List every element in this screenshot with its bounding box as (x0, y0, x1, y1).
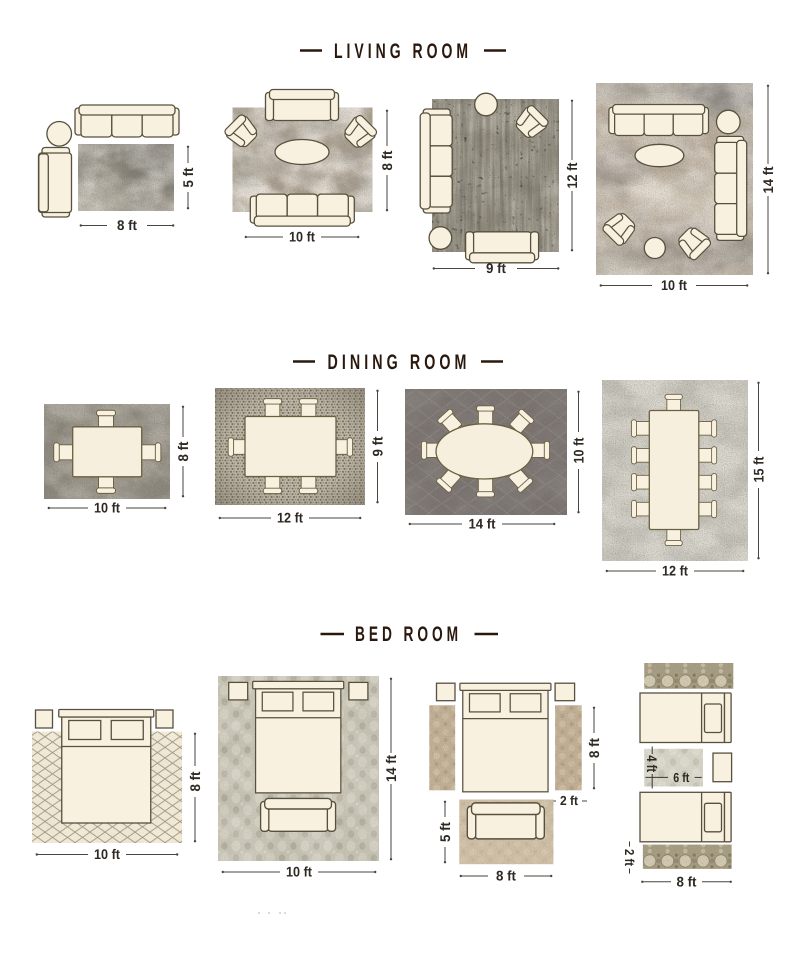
svg-text:BED ROOM: BED ROOM (355, 623, 462, 646)
svg-text:2 ft: 2 ft (560, 793, 579, 808)
svg-text:15 ft: 15 ft (751, 456, 767, 482)
svg-text:14 ft: 14 ft (469, 516, 496, 532)
svg-text:12 ft: 12 ft (662, 563, 688, 579)
svg-text:10 ft: 10 ft (286, 864, 312, 880)
svg-text:10 ft: 10 ft (289, 229, 315, 245)
svg-text:12 ft: 12 ft (564, 162, 580, 188)
svg-text:8 ft: 8 ft (586, 738, 602, 758)
svg-text:14 ft: 14 ft (760, 166, 776, 193)
svg-text:10 ft: 10 ft (94, 846, 120, 862)
svg-text:DINING ROOM: DINING ROOM (328, 351, 471, 374)
svg-text:8 ft: 8 ft (496, 868, 516, 884)
svg-text:10 ft: 10 ft (661, 277, 687, 293)
svg-text:12 ft: 12 ft (277, 510, 303, 526)
svg-text:10 ft: 10 ft (94, 500, 120, 516)
svg-text:8 ft: 8 ft (187, 771, 203, 791)
svg-text:6 ft: 6 ft (673, 770, 690, 785)
svg-text:9 ft: 9 ft (486, 260, 506, 276)
svg-text:LIVING ROOM: LIVING ROOM (334, 40, 472, 63)
svg-text:4 ft: 4 ft (644, 755, 660, 772)
svg-text:8 ft: 8 ft (379, 150, 395, 170)
svg-text:8 ft: 8 ft (175, 441, 191, 461)
svg-text:9 ft: 9 ft (370, 436, 386, 456)
svg-text:5 ft: 5 ft (437, 822, 453, 842)
svg-text:14 ft: 14 ft (383, 755, 399, 782)
svg-text:5 ft: 5 ft (180, 167, 196, 187)
svg-text:2 ft: 2 ft (622, 849, 637, 867)
svg-text:8 ft: 8 ft (677, 873, 697, 889)
svg-text:8 ft: 8 ft (117, 217, 137, 233)
svg-text:10 ft: 10 ft (571, 437, 587, 463)
